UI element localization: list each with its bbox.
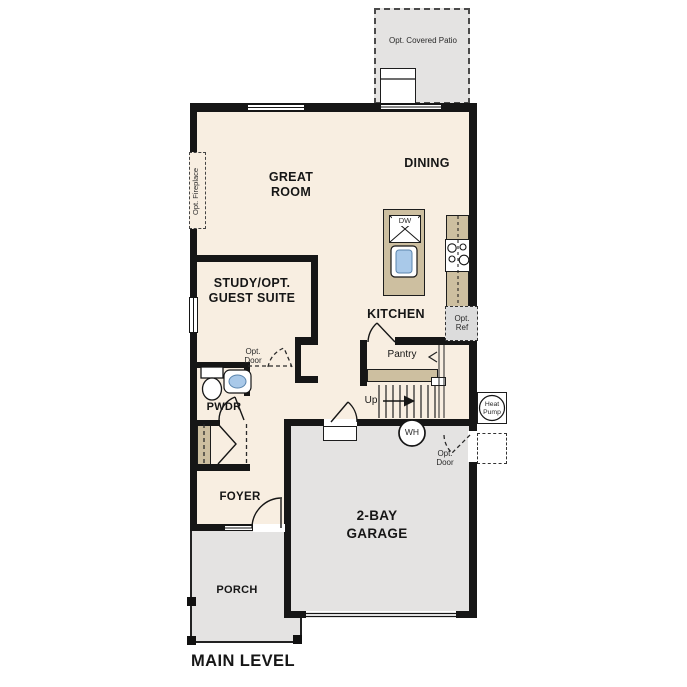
garage-door-opening <box>306 611 456 619</box>
porch-label: PORCH <box>207 584 267 597</box>
up-label: Up <box>360 395 382 407</box>
wall-closet-bottom <box>190 464 250 471</box>
plan-title: MAIN LEVEL <box>191 652 391 672</box>
wall-hall-nook-bottom <box>295 376 318 383</box>
opt-door-study-label: Opt. Door <box>238 347 268 365</box>
porch-post <box>293 635 302 644</box>
wall-study-top <box>190 255 318 262</box>
study-window <box>189 297 198 333</box>
dining-label: DINING <box>387 156 467 171</box>
porch-post <box>187 636 196 645</box>
porch-post <box>187 597 196 606</box>
dw-label: DW <box>392 217 418 226</box>
opt-ref-label: Opt. Ref <box>449 314 475 332</box>
pantry-shelf <box>367 369 438 382</box>
pwdr-label: PWDR <box>199 401 249 414</box>
patio-grill <box>380 68 416 104</box>
patio-label: Opt. Covered Patio <box>377 36 469 45</box>
closet-shelf <box>197 424 211 465</box>
great-room-label: GREAT ROOM <box>256 170 326 200</box>
heat-pump-label: Heat Pump <box>478 401 506 417</box>
opt-fireplace-label: Opt. Fireplace <box>192 153 204 229</box>
wall-garage-left <box>284 419 291 618</box>
study-label: STUDY/OPT. GUEST SUITE <box>200 276 304 306</box>
front-door-opening <box>253 524 285 532</box>
garage-side-stoop <box>477 433 507 464</box>
opt-door-garage-label: Opt. Door <box>430 449 460 467</box>
garage-step <box>323 426 357 441</box>
foyer-label: FOYER <box>210 491 270 505</box>
garage-label: 2-BAY GARAGE <box>332 507 422 543</box>
foyer-window <box>224 525 253 531</box>
wall-pwdr-bottom <box>190 420 220 426</box>
wh-label: WH <box>399 428 425 438</box>
floor-plan: Opt. Covered Patio GREAT ROOM DINING STU… <box>0 0 687 687</box>
wall-pwdr-right <box>244 362 250 396</box>
great-room-window <box>247 104 305 111</box>
pantry-label: Pantry <box>372 349 432 361</box>
wall-study-right <box>311 255 318 344</box>
patio-slider-door <box>380 104 442 110</box>
kitchen-label: KITCHEN <box>356 307 436 322</box>
wall-garage-top <box>284 419 477 426</box>
stair-newel <box>431 377 446 386</box>
range-box <box>445 239 470 272</box>
wall-right <box>469 103 477 618</box>
wall-pantry-left <box>360 340 367 386</box>
